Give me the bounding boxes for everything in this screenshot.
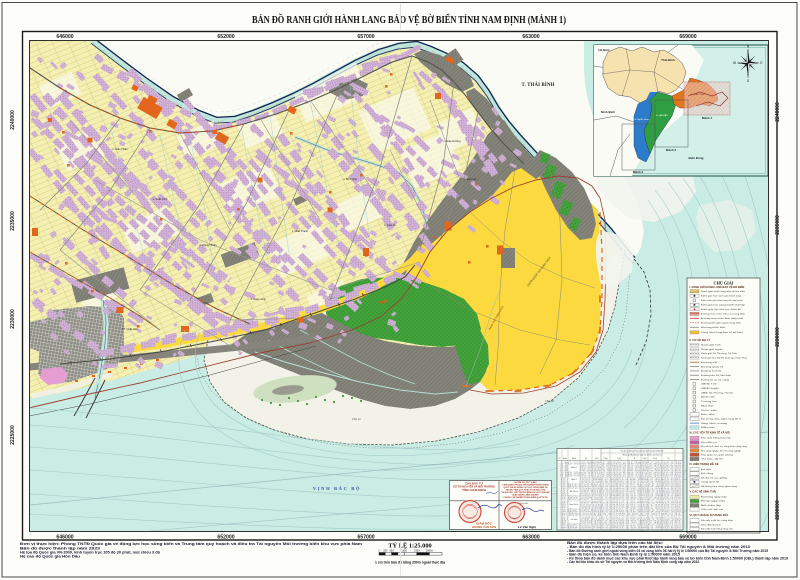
svg-text:Điểm giới hạn khu vực thăm dò: Điểm giới hạn khu vực thăm dò xyxy=(701,308,742,311)
svg-text:652000: 652000 xyxy=(217,535,234,541)
svg-text:Đường Tỉnh lộ: Đường Tỉnh lộ xyxy=(701,370,722,373)
svg-text:Khu công nghiệp, tiểu thủ công: Khu công nghiệp, tiểu thủ công nghiệp xyxy=(701,449,742,452)
svg-text:500: 500 xyxy=(390,550,395,553)
svg-text:Khu đất nuôi trồng thủy sản: Khu đất nuôi trồng thủy sản xyxy=(701,528,734,531)
svg-text:669000: 669000 xyxy=(679,34,696,40)
svg-text:Đường Quốc lộ: Đường Quốc lộ xyxy=(701,365,724,368)
svg-text:UBND Tỉnh: UBND Tỉnh xyxy=(701,383,718,386)
svg-text:Đường liên Xã, liên thôn: Đường liên Xã, liên thôn xyxy=(701,374,732,377)
svg-text:T. THÁI BÌNH: T. THÁI BÌNH xyxy=(522,82,555,88)
svg-text:Bệnh viện: Bệnh viện xyxy=(701,397,716,399)
svg-text:Sông, kênh, mương: Sông, kênh, mương xyxy=(701,423,728,425)
svg-text:1500: 1500 xyxy=(414,550,420,553)
svg-text:PHÒNG CHỦ NHIỆM TRỌNG ĐIỂM QG/: PHÒNG CHỦ NHIỆM TRỌNG ĐIỂM QG/PTN TĐ xyxy=(504,496,549,499)
svg-text:30 M30 2214 6.8 30738.3 65 6.9: 30 M30 2214 6.8 30738.3 65 6.9 30738.0 1… xyxy=(560,513,682,515)
svg-text:TỶ LỆ 1:25.000: TỶ LỆ 1:25.000 xyxy=(388,542,432,550)
svg-text:TT. Quất Lâm: TT. Quất Lâm xyxy=(122,327,138,331)
svg-text:Khu quân sự, quốc phòng: Khu quân sự, quốc phòng xyxy=(701,454,734,457)
svg-text:2225000: 2225000 xyxy=(10,425,16,445)
svg-text:Đường sắt: Đường sắt xyxy=(701,361,718,364)
svg-text:Ranh giới Xã, Phường, Thị Trấn: Ranh giới Xã, Phường, Thị Trấn xyxy=(701,352,738,355)
svg-text:250: 250 xyxy=(383,550,388,553)
svg-text:TT: TT xyxy=(558,458,560,460)
svg-text:1 cm trên bản đồ bằng 250m ngo: 1 cm trên bản đồ bằng 250m ngoài thực đị… xyxy=(375,560,445,565)
svg-text:15 M15 2292 4520.9 36327.8 23: 15 M15 2292 4520.9 36327.8 23 4520.9 363… xyxy=(560,487,682,489)
svg-text:Đường mép nước biển thấp nhất: Đường mép nước biển thấp nhất xyxy=(701,317,744,320)
svg-text:29 M29 2279 4503.5 34735.3 18: 29 M29 2279 4503.5 34735.3 18 4503.9 347… xyxy=(560,512,682,514)
svg-text:Mảnh 3: Mảnh 3 xyxy=(633,170,644,174)
svg-text:Y (m): Y (m) xyxy=(653,458,658,460)
svg-text:2240000: 2240000 xyxy=(775,102,781,122)
svg-text:646000: 646000 xyxy=(56,34,73,40)
svg-text:2235000: 2235000 xyxy=(775,215,781,235)
svg-text:2235000: 2235000 xyxy=(10,211,16,231)
svg-text:669000: 669000 xyxy=(679,535,696,541)
svg-text:Mảnh 1: Mảnh 1 xyxy=(702,116,713,120)
svg-text:Cồn Lu: Cồn Lu xyxy=(352,417,361,421)
svg-text:Đê đất: Đê đất xyxy=(701,468,712,471)
svg-text:Chùa, miếu: Chùa, miếu xyxy=(701,409,718,412)
svg-text:Đường mực nước triều cao trung: Đường mực nước triều cao trung bình xyxy=(701,313,746,316)
svg-text:Khu đất du lịch: Khu đất du lịch xyxy=(701,523,722,526)
svg-text:Điểm giới hạn ranh giới hành l: Điểm giới hạn ranh giới hành lang xyxy=(701,295,742,298)
svg-text:663000: 663000 xyxy=(522,535,539,541)
svg-text:Bãi triều lầy: Bãi triều lầy xyxy=(701,504,723,507)
svg-text:Thị trấn, đô thị: Thị trấn, đô thị xyxy=(701,458,724,461)
svg-text:TỈNH NAM ĐỊNH: TỈNH NAM ĐỊNH xyxy=(462,489,486,492)
svg-text:x. Giao Thanh: x. Giao Thanh xyxy=(292,229,309,233)
svg-text:13 M13 2278 97771.0 39826.3 62: 13 M13 2278 97771.0 39826.3 62 97771.4 3… xyxy=(560,483,682,485)
svg-text:Đài tưởng niệm, nghĩa trang li: Đài tưởng niệm, nghĩa trang liệt sĩ xyxy=(701,417,742,420)
svg-text:Hà Nam: Hà Nam xyxy=(598,48,610,52)
svg-text:x. Xuân Vinh: x. Xuân Vinh xyxy=(153,197,168,201)
svg-text:657000: 657000 xyxy=(357,34,374,40)
svg-text:Kè đá, kè ao, giếng: Kè đá, kè ao, giếng xyxy=(701,476,728,479)
svg-text:Trường học: Trường học xyxy=(701,400,717,403)
svg-text:UBND huyện: UBND huyện xyxy=(701,388,720,390)
svg-text:Biển Đông: Biển Đông xyxy=(689,156,704,160)
svg-text:H. GIAO THỦY: H. GIAO THỦY xyxy=(691,93,706,96)
svg-text:Khu đất ở đô thị, nông thôn: Khu đất ở đô thị, nông thôn xyxy=(701,519,734,522)
svg-text:2230000: 2230000 xyxy=(10,309,16,329)
svg-text:Ranh giới khu bãi bồi Quốc gia: Ranh giới khu bãi bồi Quốc gia Xuân Thủy xyxy=(701,357,748,360)
svg-text:Mặt nước: Mặt nước xyxy=(701,426,715,429)
svg-text:1000: 1000 xyxy=(402,550,408,553)
svg-text:2240000: 2240000 xyxy=(10,110,16,130)
svg-text:663000: 663000 xyxy=(522,34,539,40)
svg-text:Khu dân cư: Khu dân cư xyxy=(701,442,718,444)
svg-text:28 M28 2289 96076.8 37820.6 81: 28 M28 2289 96076.8 37820.6 81 96076.3 3… xyxy=(560,510,682,512)
svg-text:x. Bình Hòa: x. Bình Hòa xyxy=(343,177,357,181)
svg-text:Nhà thờ: Nhà thờ xyxy=(701,404,714,407)
svg-text:Khu du lịch, dịch vụ, công trì: Khu du lịch, dịch vụ, công trình công cộ… xyxy=(701,445,748,448)
svg-text:21 M21 2258 327.1 34921.0 82 3: 21 M21 2258 327.1 34921.0 82 327.2 34921… xyxy=(560,497,682,499)
svg-text:37 M37 2250 4226.2 38028.5 19: 37 M37 2250 4226.2 38028.5 19 4226.5 380… xyxy=(560,526,682,528)
svg-text:Đất trồng ngập mặn: Đất trồng ngập mặn xyxy=(701,496,728,499)
svg-text:1 M1 2279 99898.2 39709.5 87 9: 1 M1 2279 99898.2 39709.5 87 99898.7 397… xyxy=(560,462,682,464)
svg-text:38 M38 2248 2383.5 39611.4 34: 38 M38 2248 2383.5 39611.4 34 2383.5 396… xyxy=(560,528,682,530)
svg-text:H. HẢI HẬU: H. HẢI HẬU xyxy=(656,114,668,117)
svg-text:22 M22 2240 99646.5 34413.2 96: 22 M22 2240 99646.5 34413.2 96 99646.6 3… xyxy=(560,499,682,501)
svg-text:Cống dưới đê: Cống dưới đê xyxy=(701,481,720,484)
svg-text:Đường bờ ao, bờ ruộng: Đường bờ ao, bờ ruộng xyxy=(701,378,730,381)
svg-text:2230000: 2230000 xyxy=(775,500,781,520)
svg-text:Ranh giới hành lang bảo vệ bờ: Ranh giới hành lang bảo vệ bờ biển xyxy=(701,290,746,293)
svg-text:Đường biên giới ngoài vùng biể: Đường biên giới ngoài vùng biển xyxy=(701,322,742,325)
svg-text:2230000: 2230000 xyxy=(775,327,781,347)
svg-text:E: E xyxy=(760,61,762,65)
svg-text:Rừng ngập mặn: Rừng ngập mặn xyxy=(701,500,726,503)
svg-text:x. Giao An: x. Giao An xyxy=(384,223,397,227)
svg-text:X (m): X (m) xyxy=(642,458,647,460)
svg-text:14 M14 2253 98559.5 30695.5 27: 14 M14 2253 98559.5 30695.5 27 98559.6 3… xyxy=(560,485,682,487)
svg-text:- Các tài liệu khác do sở Tài: - Các tài liệu khác do sở Tài nguyên và … xyxy=(567,560,700,564)
svg-text:657000: 657000 xyxy=(357,535,374,541)
svg-text:Ninh Bình: Ninh Bình xyxy=(601,110,615,114)
svg-text:Lê Văn Nghị: Lê Văn Nghị xyxy=(518,526,536,529)
svg-text:Tỉnh: Tỉnh xyxy=(595,457,598,460)
svg-text:652000: 652000 xyxy=(217,34,234,40)
svg-text:Hệ cao độ Quốc gia Hòn Dấu: Hệ cao độ Quốc gia Hòn Dấu xyxy=(20,555,80,559)
svg-text:CHÚ GIẢI: CHÚ GIẢI xyxy=(714,281,734,286)
svg-text:x. Giao Long: x. Giao Long xyxy=(251,297,266,301)
svg-text:27 M27 2263 2830.9 34757.6 14: 27 M27 2263 2830.9 34757.6 14 2830.6 347… xyxy=(560,508,682,510)
svg-text:H. Nghĩa Hưng: H. Nghĩa Hưng xyxy=(635,118,651,121)
svg-text:7 M7 2283 4310.5 36322.8 84 43: 7 M7 2283 4310.5 36322.8 84 4310.6 36322… xyxy=(560,473,682,475)
svg-text:Mảnh 2: Mảnh 2 xyxy=(666,148,677,152)
svg-text:Vùng hành lang bảo vệ bờ biển: Vùng hành lang bảo vệ bờ biển xyxy=(701,331,744,334)
svg-text:Ranh giới huyện: Ranh giới huyện xyxy=(701,349,724,351)
svg-text:UBND Xã, Phường, Thị trấn: UBND Xã, Phường, Thị trấn xyxy=(701,391,734,394)
svg-text:W: W xyxy=(733,61,736,65)
svg-text:646000: 646000 xyxy=(56,535,73,541)
svg-text:Điểm ranh giới hành lang sát m: Điểm ranh giới hành lang sát mép nước xyxy=(701,299,743,302)
svg-text:x. Giào Thiện: x. Giào Thiện xyxy=(112,147,128,151)
svg-text:Y (m): Y (m) xyxy=(617,458,622,460)
svg-text:Xã: Xã xyxy=(585,457,587,460)
svg-text:Mảnh: Mảnh xyxy=(572,457,576,460)
svg-text:Hệ thống thuỷ nông, giảm sóng: Hệ thống thuỷ nông, giảm sóng xyxy=(701,485,738,488)
svg-text:BẢN ĐỒ RANH GIỚI HÀNH LANG BẢO: BẢN ĐỒ RANH GIỚI HÀNH LANG BẢO VỆ BỜ BIỂ… xyxy=(252,13,566,26)
svg-text:Thái Bình: Thái Bình xyxy=(661,58,675,62)
svg-text:Điểm giới hạn vùng bờ biển thi: Điểm giới hạn vùng bờ biển thiết lập xyxy=(701,304,746,307)
svg-text:x. Giao Lạc: x. Giao Lạc xyxy=(463,177,477,181)
svg-text:Đê sông: Đê sông xyxy=(701,473,714,475)
svg-text:x. Giao Hương: x. Giao Hương xyxy=(443,139,461,143)
svg-text:Cồn cát, bãi cát: Cồn cát, bãi cát xyxy=(701,508,724,511)
svg-text:Bản đồ được thành lập dựa trên: Bản đồ được thành lập dựa trên các tài l… xyxy=(567,541,663,545)
svg-text:20 M20 2250 5710.2 39854.5 33: 20 M20 2250 5710.2 39854.5 33 5710.5 398… xyxy=(560,496,682,498)
svg-text:Đường triều kiệt: Đường triều kiệt xyxy=(701,326,726,329)
svg-text:2000m: 2000m xyxy=(426,550,433,553)
svg-text:S: S xyxy=(747,79,749,83)
svg-text:x. Hồng Thuận: x. Hồng Thuận xyxy=(200,243,218,247)
svg-text:X (m): X (m) xyxy=(603,458,608,460)
svg-text:Ranh giới Tỉnh: Ranh giới Tỉnh xyxy=(701,344,722,347)
svg-text:8 M8 2245 1517.9 30469.2 99 15: 8 M8 2245 1517.9 30469.2 99 1517.5 30469… xyxy=(560,474,682,476)
svg-text:Khu nuôi trồng thủy sản: Khu nuôi trồng thủy sản xyxy=(701,437,732,440)
svg-text:Điểm: Điểm xyxy=(563,457,568,460)
svg-text:Đền, đình: Đền, đình xyxy=(701,413,716,416)
svg-text:Cồn Mờ: Cồn Mờ xyxy=(545,399,555,403)
svg-text:36 M36 2225 98078.0 30756.1 71: 36 M36 2225 98078.0 30756.1 71 98078.0 3… xyxy=(560,524,682,526)
svg-text:VỊNH BẮC BỘ: VỊNH BẮC BỘ xyxy=(313,485,361,491)
svg-text:Đóng dấu: Đóng dấu xyxy=(520,502,528,505)
